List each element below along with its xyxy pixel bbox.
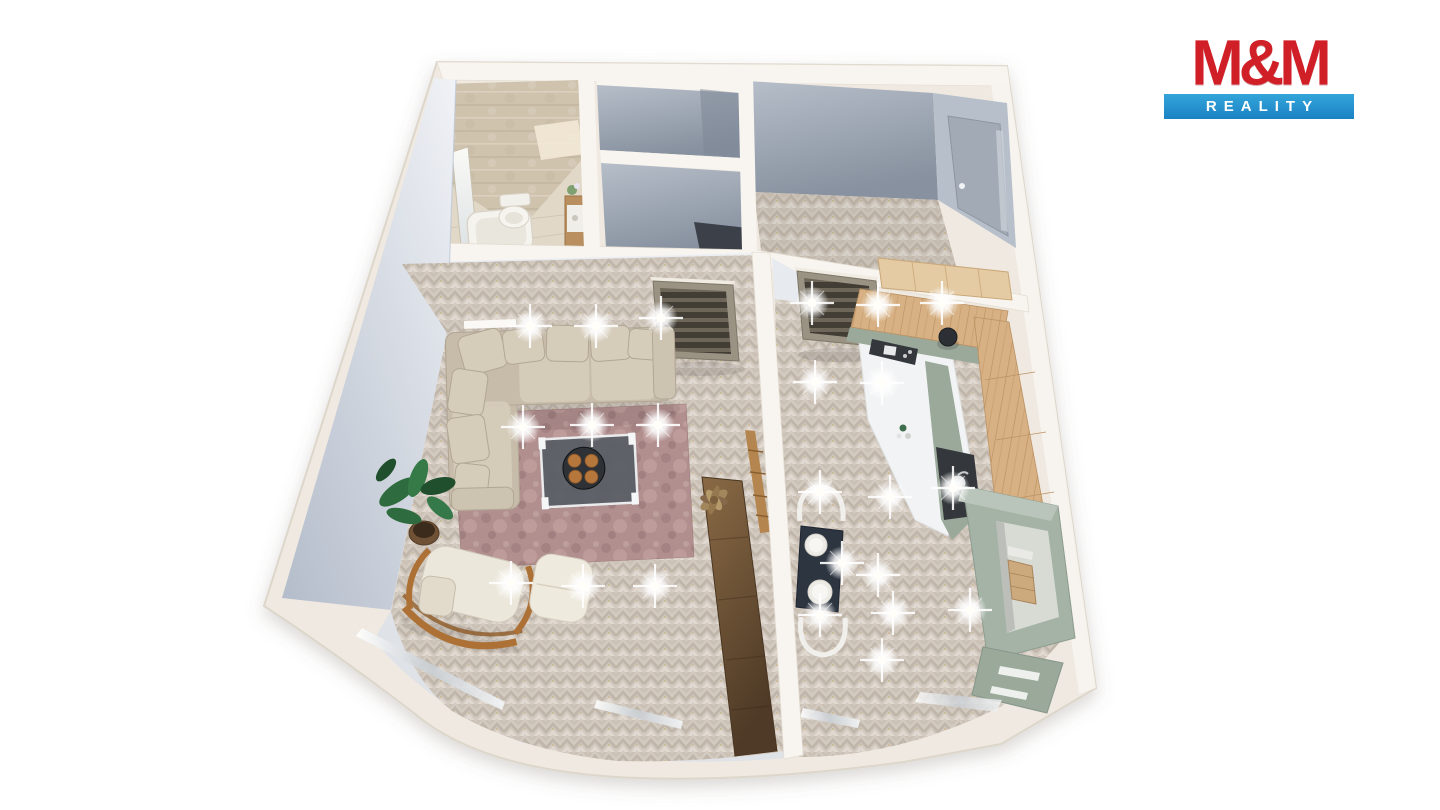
kitchen xyxy=(772,258,1112,810)
sofa-armrest xyxy=(652,327,676,400)
logo-mm-label: M&M xyxy=(1191,26,1326,99)
coffee-table xyxy=(538,432,639,509)
closet-rooms xyxy=(596,74,750,256)
logo-mm-text: M&M xyxy=(1164,31,1354,94)
niche-drawers xyxy=(1008,560,1036,604)
chair-pillow xyxy=(418,575,457,617)
logo-reality-label: REALITY xyxy=(1206,98,1319,115)
mm-reality-logo: M&M REALITY xyxy=(1164,32,1354,119)
floorplan-render xyxy=(0,0,1440,810)
hall-left-wall xyxy=(748,81,938,200)
floorplan-page: M&M REALITY xyxy=(0,0,1440,810)
bathroom-window-light xyxy=(534,120,584,160)
toilet xyxy=(499,193,530,228)
door-handle xyxy=(959,183,965,189)
